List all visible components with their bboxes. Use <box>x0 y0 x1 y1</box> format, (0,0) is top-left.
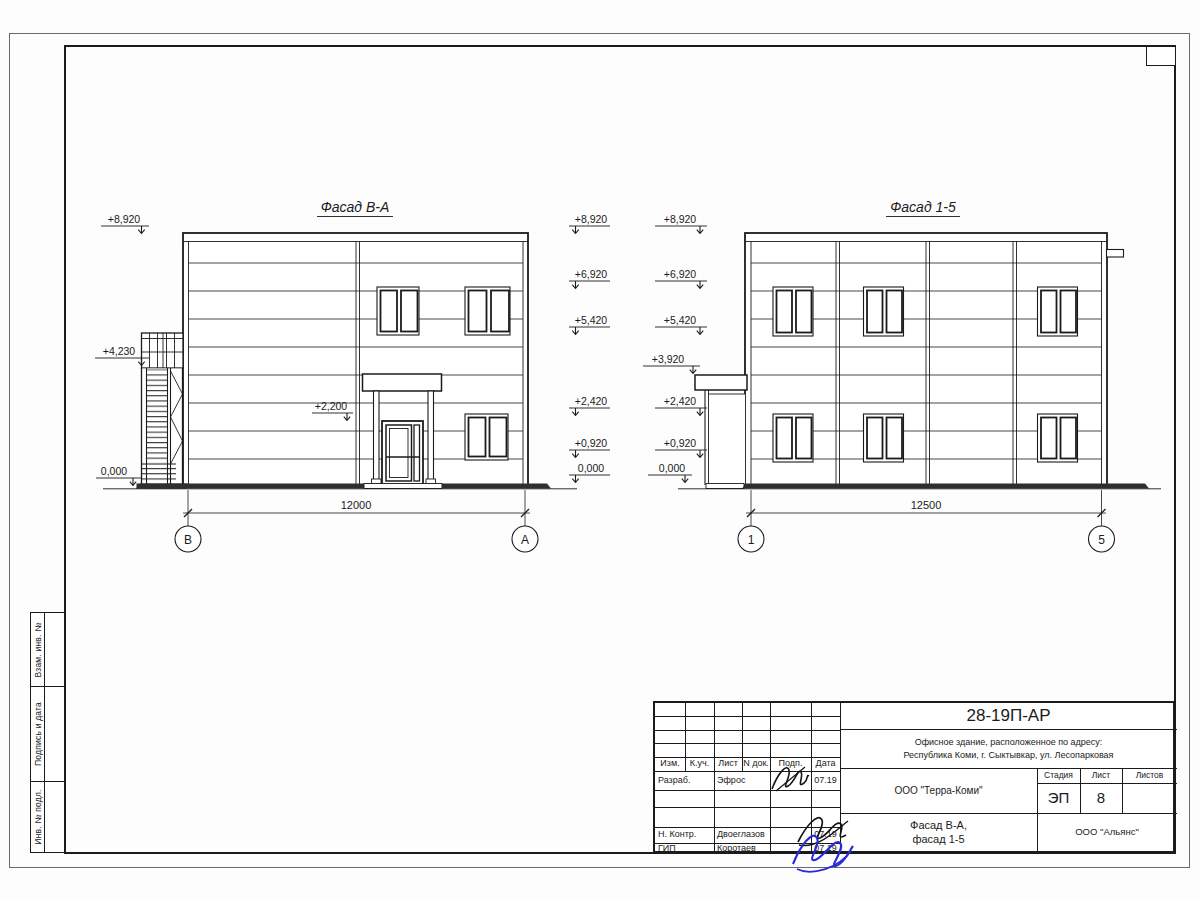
row-nkontr-date: 07.19 <box>811 827 840 843</box>
drawing-title-line1: Фасад В-А, <box>910 818 967 832</box>
row-razrab-date: 07.19 <box>811 771 840 790</box>
row-razrab-role: Разраб. <box>655 771 714 790</box>
stamp-box-inv: Инв. № подл. <box>30 781 65 853</box>
col-header-izm: Изм. <box>655 757 685 771</box>
drawing-sheet: { "margin_stamps": { "box1": "Взам. инв.… <box>0 0 1200 900</box>
project-description: Офисное здание, расположенное по адресу:… <box>840 729 1177 768</box>
project-description-line2: Республика Коми, г. Сыктывкар, ул. Лесоп… <box>904 749 1114 761</box>
stamp-box-vzam: Взам. инв. № <box>30 612 65 687</box>
stage-value: ЭП <box>1037 783 1080 813</box>
col-header-ndok: N док. <box>742 757 770 771</box>
sheet-value: 8 <box>1080 783 1122 813</box>
col-header-list: Лист <box>714 757 742 771</box>
stamp-label-vzam: Взам. инв. № <box>33 622 43 677</box>
row-gip-role: ГИП <box>655 843 714 855</box>
stamp-label-inv: Инв. № подл. <box>33 789 43 844</box>
corner-stamp-box <box>1146 46 1176 66</box>
row-razrab-name: Эфрос <box>714 771 770 790</box>
col-header-kuch: К.уч. <box>685 757 714 771</box>
stage-label: Стадия <box>1037 768 1080 783</box>
col-header-data: Дата <box>811 757 840 771</box>
sheets-label: Листов <box>1122 768 1177 783</box>
title-block: Изм. К.уч. Лист N док. Подп. Дата Разраб… <box>653 701 1175 853</box>
stamp-box-podpis: Подпись и дата <box>30 686 65 782</box>
col-header-podp: Подп. <box>770 757 811 771</box>
contractor-name: ООО "Альянс" <box>1037 813 1177 851</box>
row-gip-date: 07.19 <box>811 843 840 855</box>
sheet-label: Лист <box>1080 768 1122 783</box>
row-nkontr-role: Н. Контр. <box>655 827 714 843</box>
row-nkontr-name: Двоеглазов <box>714 827 774 843</box>
project-description-line1: Офисное здание, расположенное по адресу: <box>915 736 1103 748</box>
drawing-title-line2: фасад 1-5 <box>912 832 964 846</box>
row-gip-name: Коротаев <box>714 843 774 855</box>
doc-number: 28-19П-АР <box>840 703 1177 729</box>
sheets-value <box>1122 783 1177 813</box>
company-name: ООО "Терра-Коми" <box>840 768 1037 813</box>
drawing-title: Фасад В-А, фасад 1-5 <box>840 813 1037 851</box>
stamp-label-podpis: Подпись и дата <box>33 702 43 766</box>
